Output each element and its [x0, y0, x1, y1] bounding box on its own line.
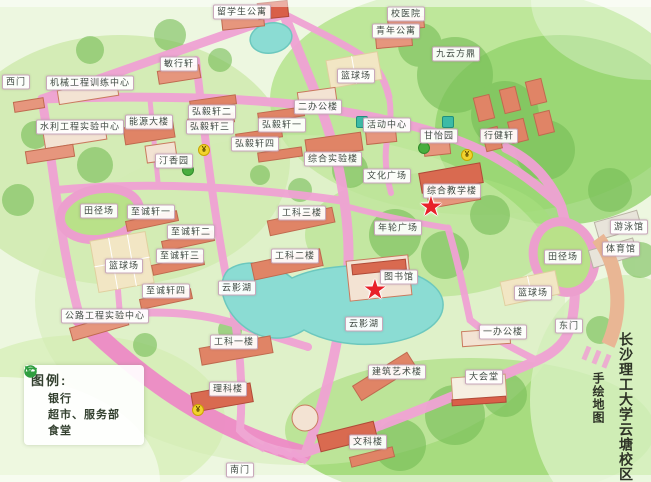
- supermarket-icon: [31, 409, 44, 422]
- canteen-icon: [31, 425, 44, 438]
- map-title-line2: 手绘地图: [590, 372, 607, 424]
- basketball-courts-west: [90, 232, 154, 293]
- legend-item-bank: ¥ 银行: [31, 391, 137, 407]
- map-title-calligraphy: 长沙理工大学云塘校区 手绘地图: [587, 330, 647, 480]
- legend-item-label: 超市、服务部: [48, 407, 120, 423]
- legend-title: 图例:: [31, 370, 137, 389]
- legend-item-canteen: 食堂: [31, 423, 137, 439]
- map-title-line1: 长沙理工大学云塘校区: [615, 332, 635, 482]
- campus-map: ¥¥¥ 留学生公寓校医院青年公寓九云方鼎敏行轩西门篮球场机械工程训练中心弘毅轩二…: [0, 0, 651, 482]
- legend-item-supermarket: 超市、服务部: [31, 407, 137, 423]
- bank-icon: ¥: [31, 393, 44, 406]
- legend-item-label: 银行: [48, 391, 72, 407]
- legend: 图例: ¥ 银行 超市、服务部 食堂: [24, 365, 144, 445]
- legend-item-label: 食堂: [48, 423, 72, 439]
